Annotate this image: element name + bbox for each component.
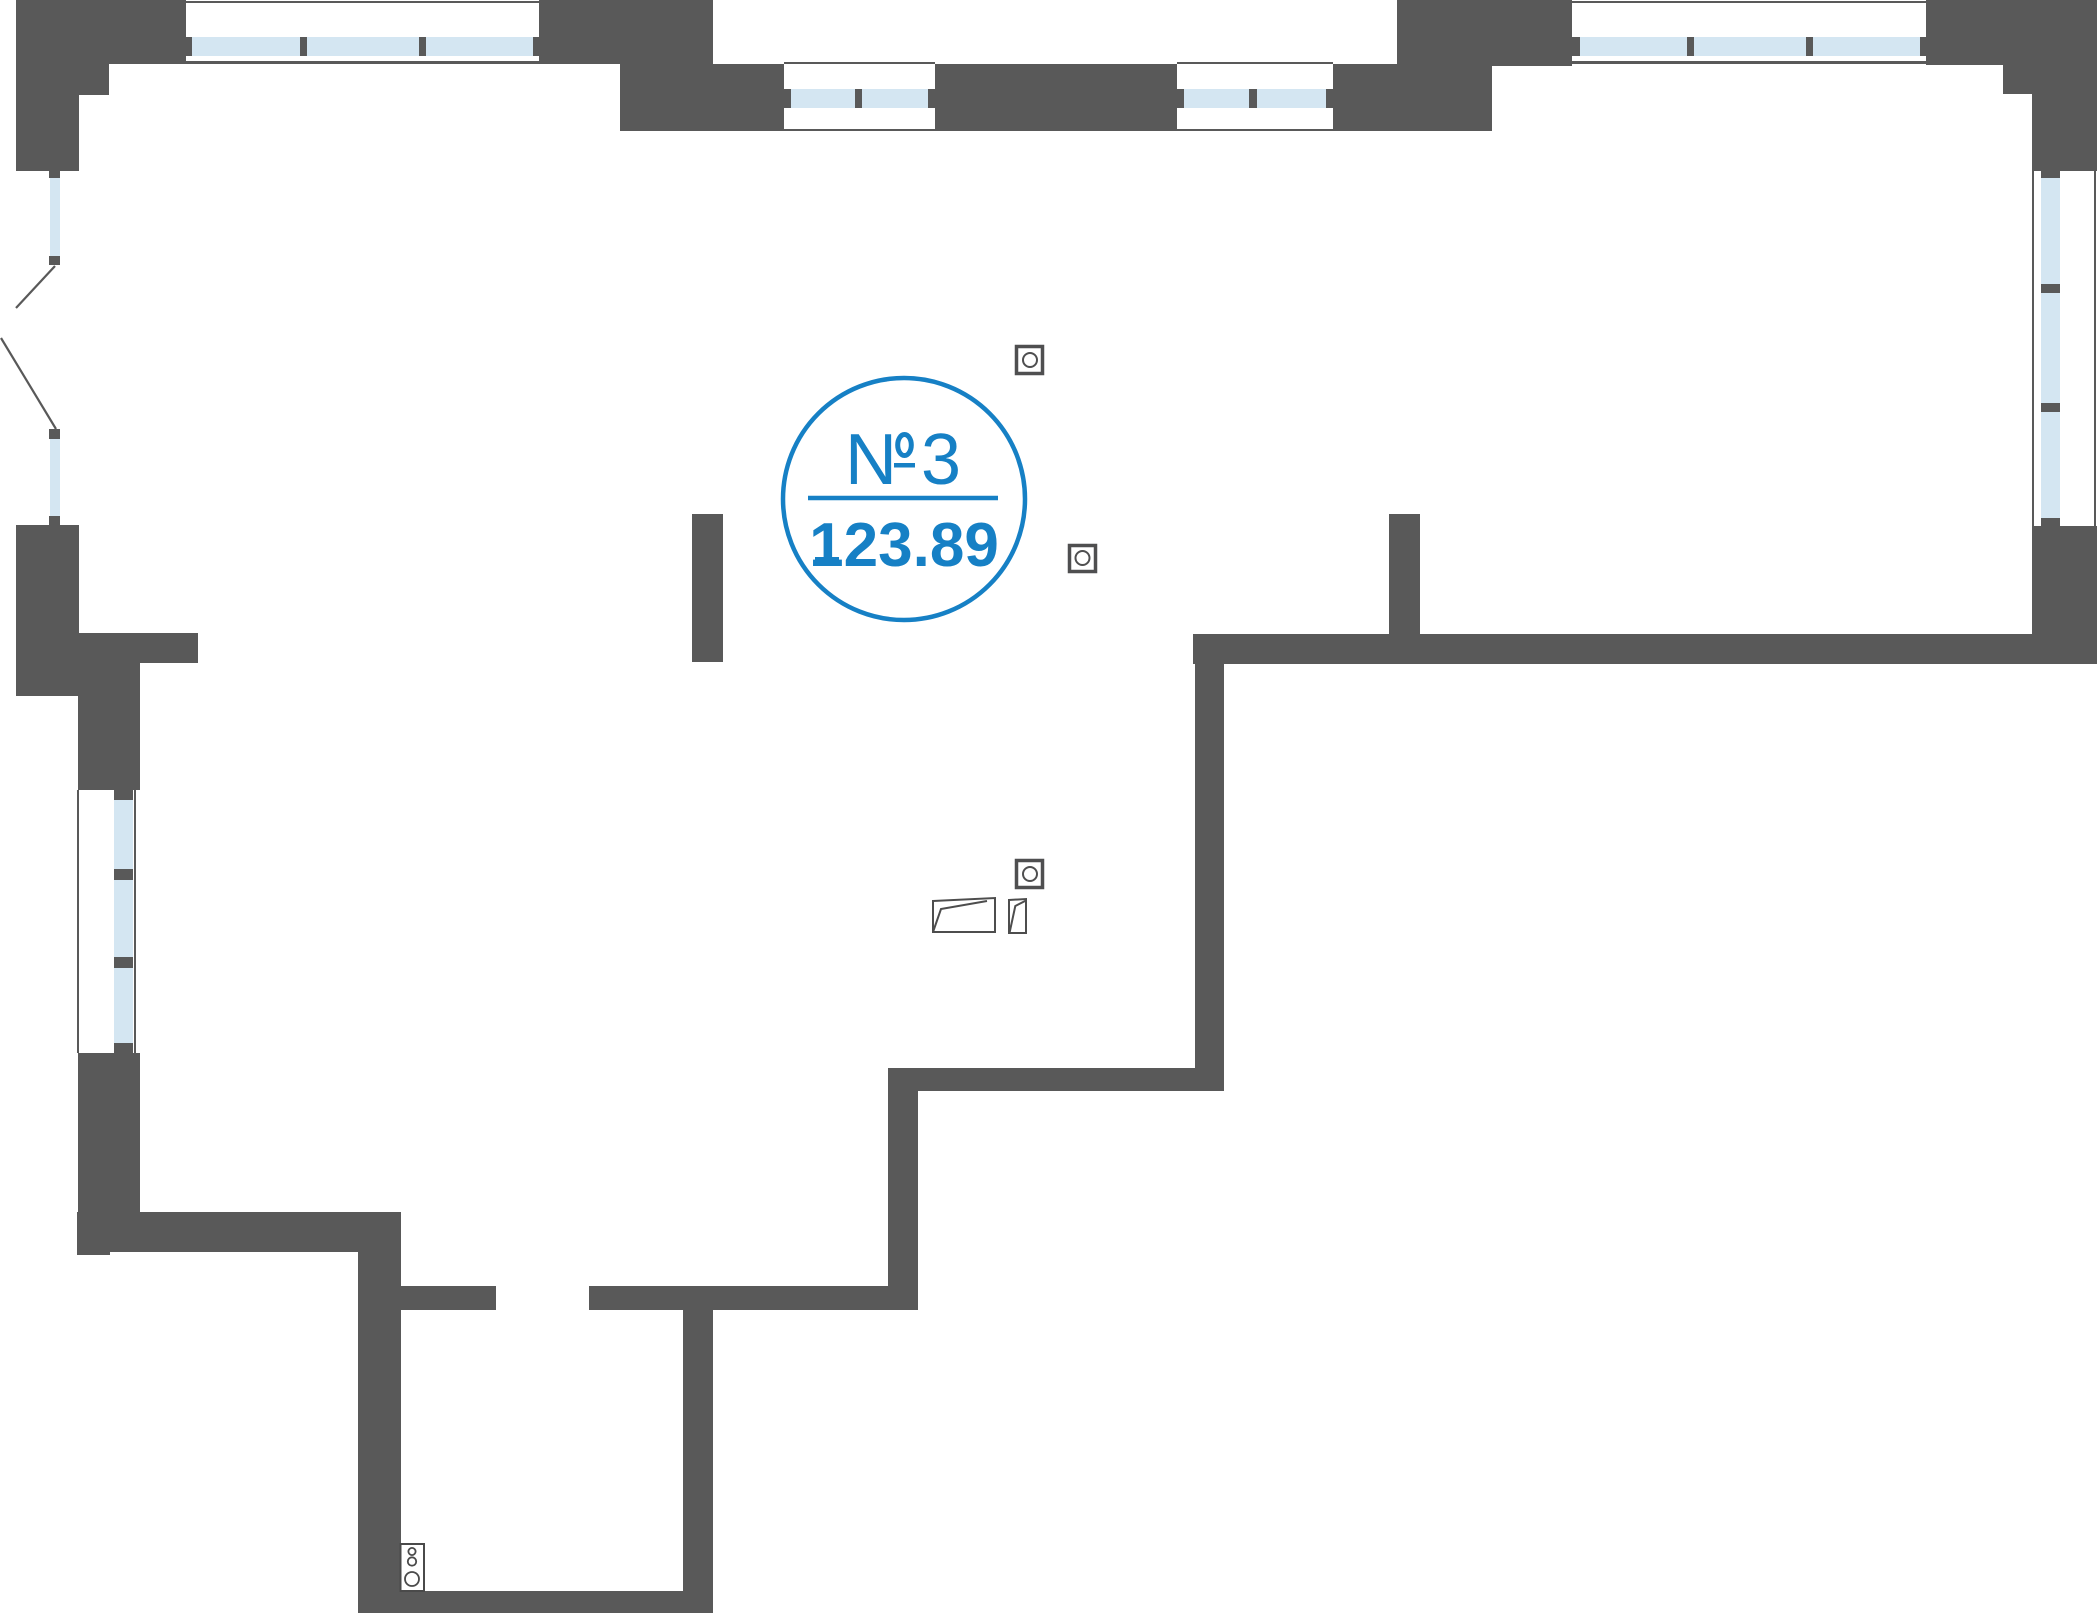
- svg-text:123.89: 123.89: [809, 511, 999, 580]
- svg-text:3: 3: [921, 420, 961, 500]
- svg-text:N: N: [845, 420, 897, 500]
